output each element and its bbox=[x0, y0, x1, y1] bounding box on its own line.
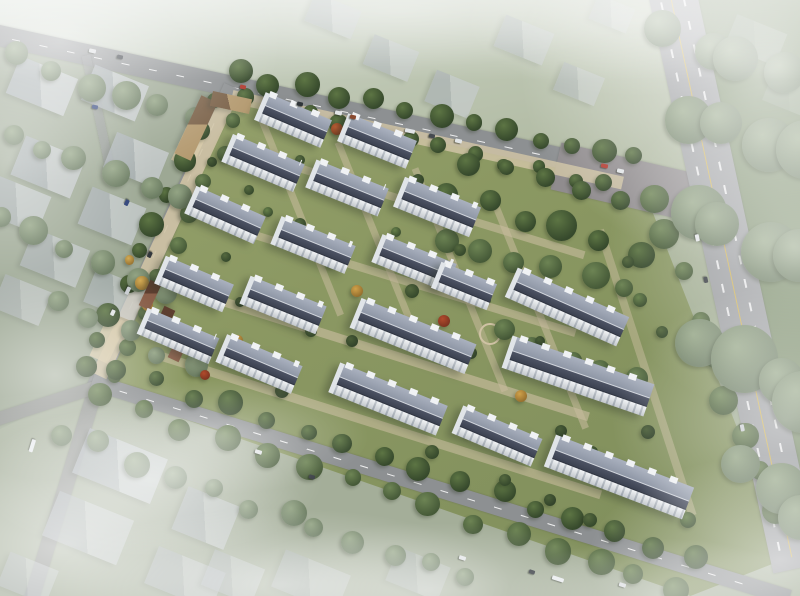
horizon-mist bbox=[0, 0, 800, 80]
aerial-rendering-residential-complex bbox=[0, 0, 800, 596]
fog-layer bbox=[0, 0, 800, 596]
